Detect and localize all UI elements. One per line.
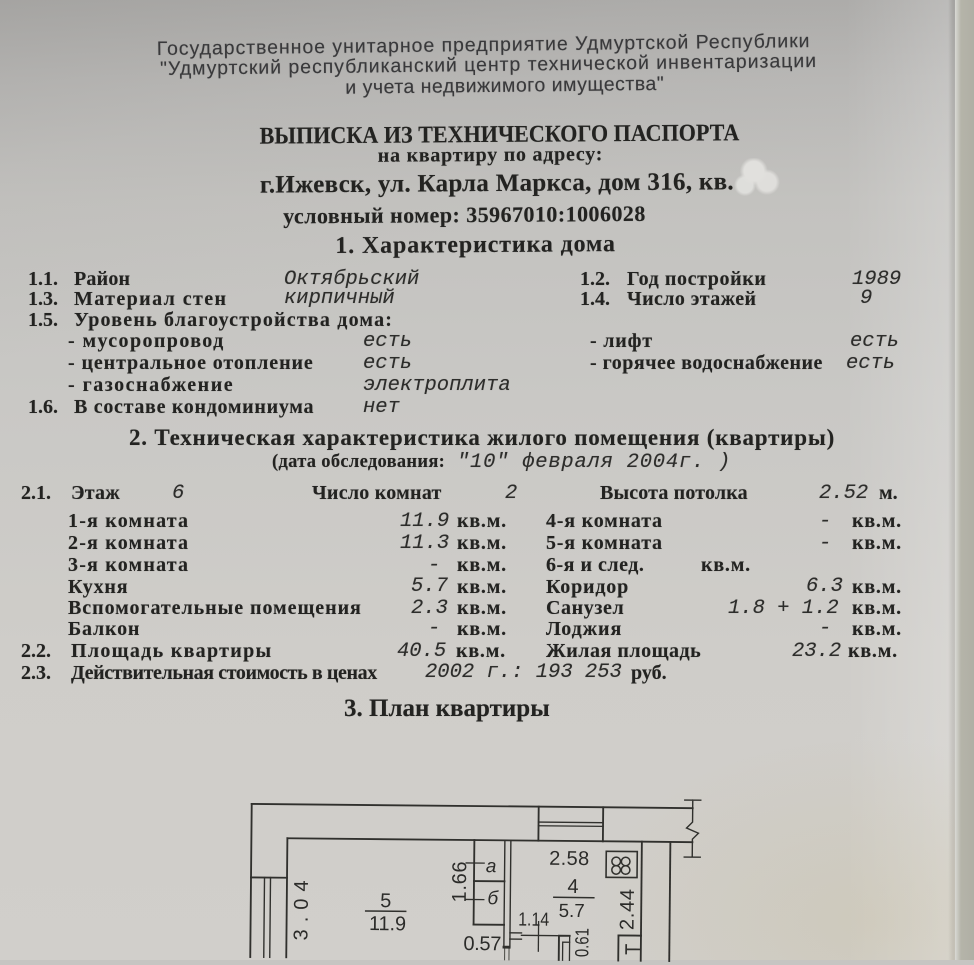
svg-text:1.14: 1.14 (518, 909, 550, 930)
svg-text:0.57: 0.57 (463, 933, 501, 955)
svg-text:5: 5 (380, 890, 391, 912)
svg-text:2.58: 2.58 (549, 848, 589, 870)
svg-text:2.44: 2.44 (617, 889, 639, 930)
svg-text:0.61: 0.61 (572, 928, 593, 957)
svg-text:4: 4 (567, 876, 578, 898)
svg-text:1.66: 1.66 (449, 861, 471, 902)
svg-text:5.7: 5.7 (559, 901, 585, 922)
svg-text:а: а (486, 856, 497, 877)
svg-text:11.9: 11.9 (369, 913, 406, 935)
svg-text:б: б (487, 888, 499, 909)
svg-text:3.04: 3.04 (290, 880, 313, 940)
